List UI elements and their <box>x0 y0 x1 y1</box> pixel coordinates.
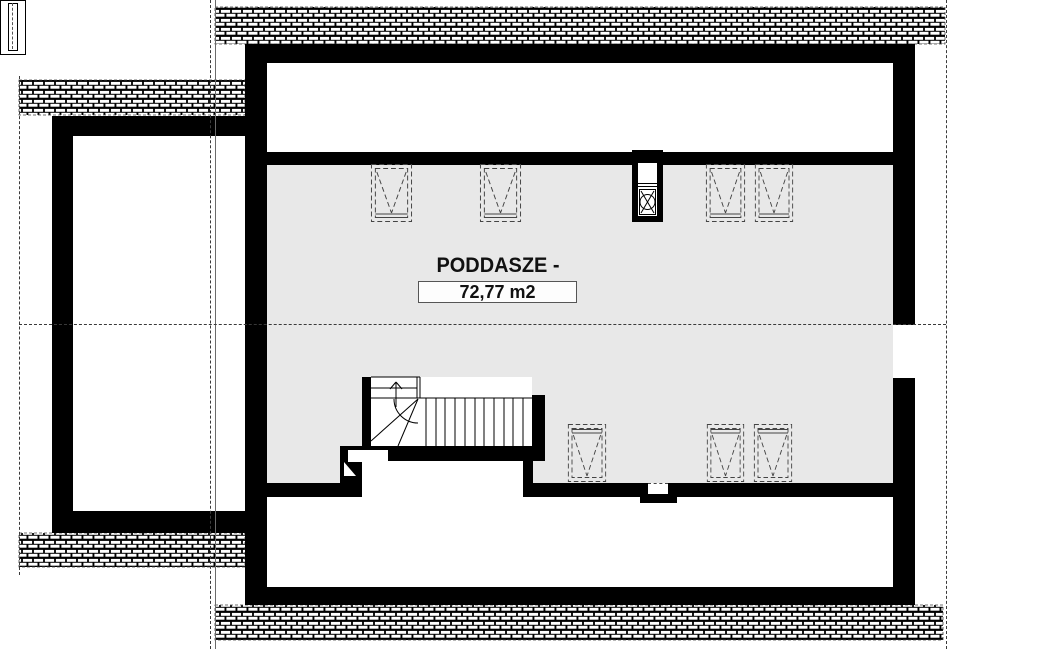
wall-annex-left <box>52 116 73 533</box>
floor-plan-canvas: PODDASZE - OPCJA 72,77 m2 <box>0 0 1038 649</box>
wall-annex-bottom <box>52 511 245 533</box>
area-box: 72,77 m2 <box>418 281 577 303</box>
wall-right-upper <box>893 63 915 325</box>
wall-annex-top <box>52 116 267 136</box>
knee-wall-opening <box>648 483 668 494</box>
roof-overhang-hatch-layer <box>0 0 1038 649</box>
stairs <box>362 375 545 461</box>
knee-wall-top <box>267 152 893 165</box>
roof-window-icon <box>479 163 522 223</box>
knee-wall-bottom-right <box>533 483 893 497</box>
area-value: 72,77 m2 <box>459 282 535 302</box>
knee-wall-step-block <box>640 497 677 503</box>
wall-bottom-outer <box>245 587 915 605</box>
chimney-icon <box>632 150 663 222</box>
roof-window-icon <box>705 163 746 223</box>
roof-window-icon <box>706 423 745 483</box>
wall-top-outer <box>245 44 915 63</box>
knee-wall-bottom-left <box>267 483 347 497</box>
roof-overhang-hatch-annex-bottom <box>19 533 245 567</box>
roof-overhang-hatch-annex-top <box>19 80 245 115</box>
stairs-up-arrow-icon <box>390 382 402 407</box>
wall-stair-step <box>523 461 533 497</box>
roof-window-icon <box>567 423 607 483</box>
roof-window-icon <box>754 163 794 223</box>
roof-window-icon <box>753 423 793 483</box>
roof-overhang-hatch-bottom <box>215 605 943 640</box>
roof-window-icon <box>370 163 413 223</box>
wall-right-lower <box>893 378 915 605</box>
flue-icon <box>640 190 656 215</box>
roof-overhang-hatch-top <box>215 7 945 44</box>
